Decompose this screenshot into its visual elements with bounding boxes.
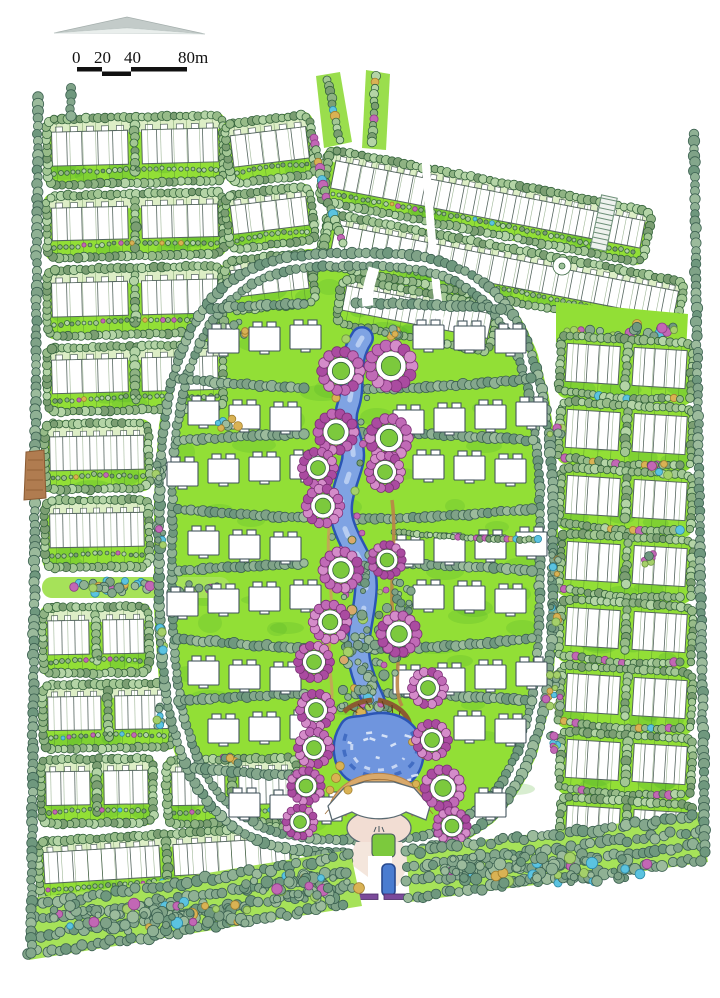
svg-text:80m: 80m [178, 48, 208, 67]
svg-text:0: 0 [72, 48, 81, 67]
svg-text:40: 40 [124, 48, 141, 67]
svg-text:20: 20 [94, 48, 111, 67]
